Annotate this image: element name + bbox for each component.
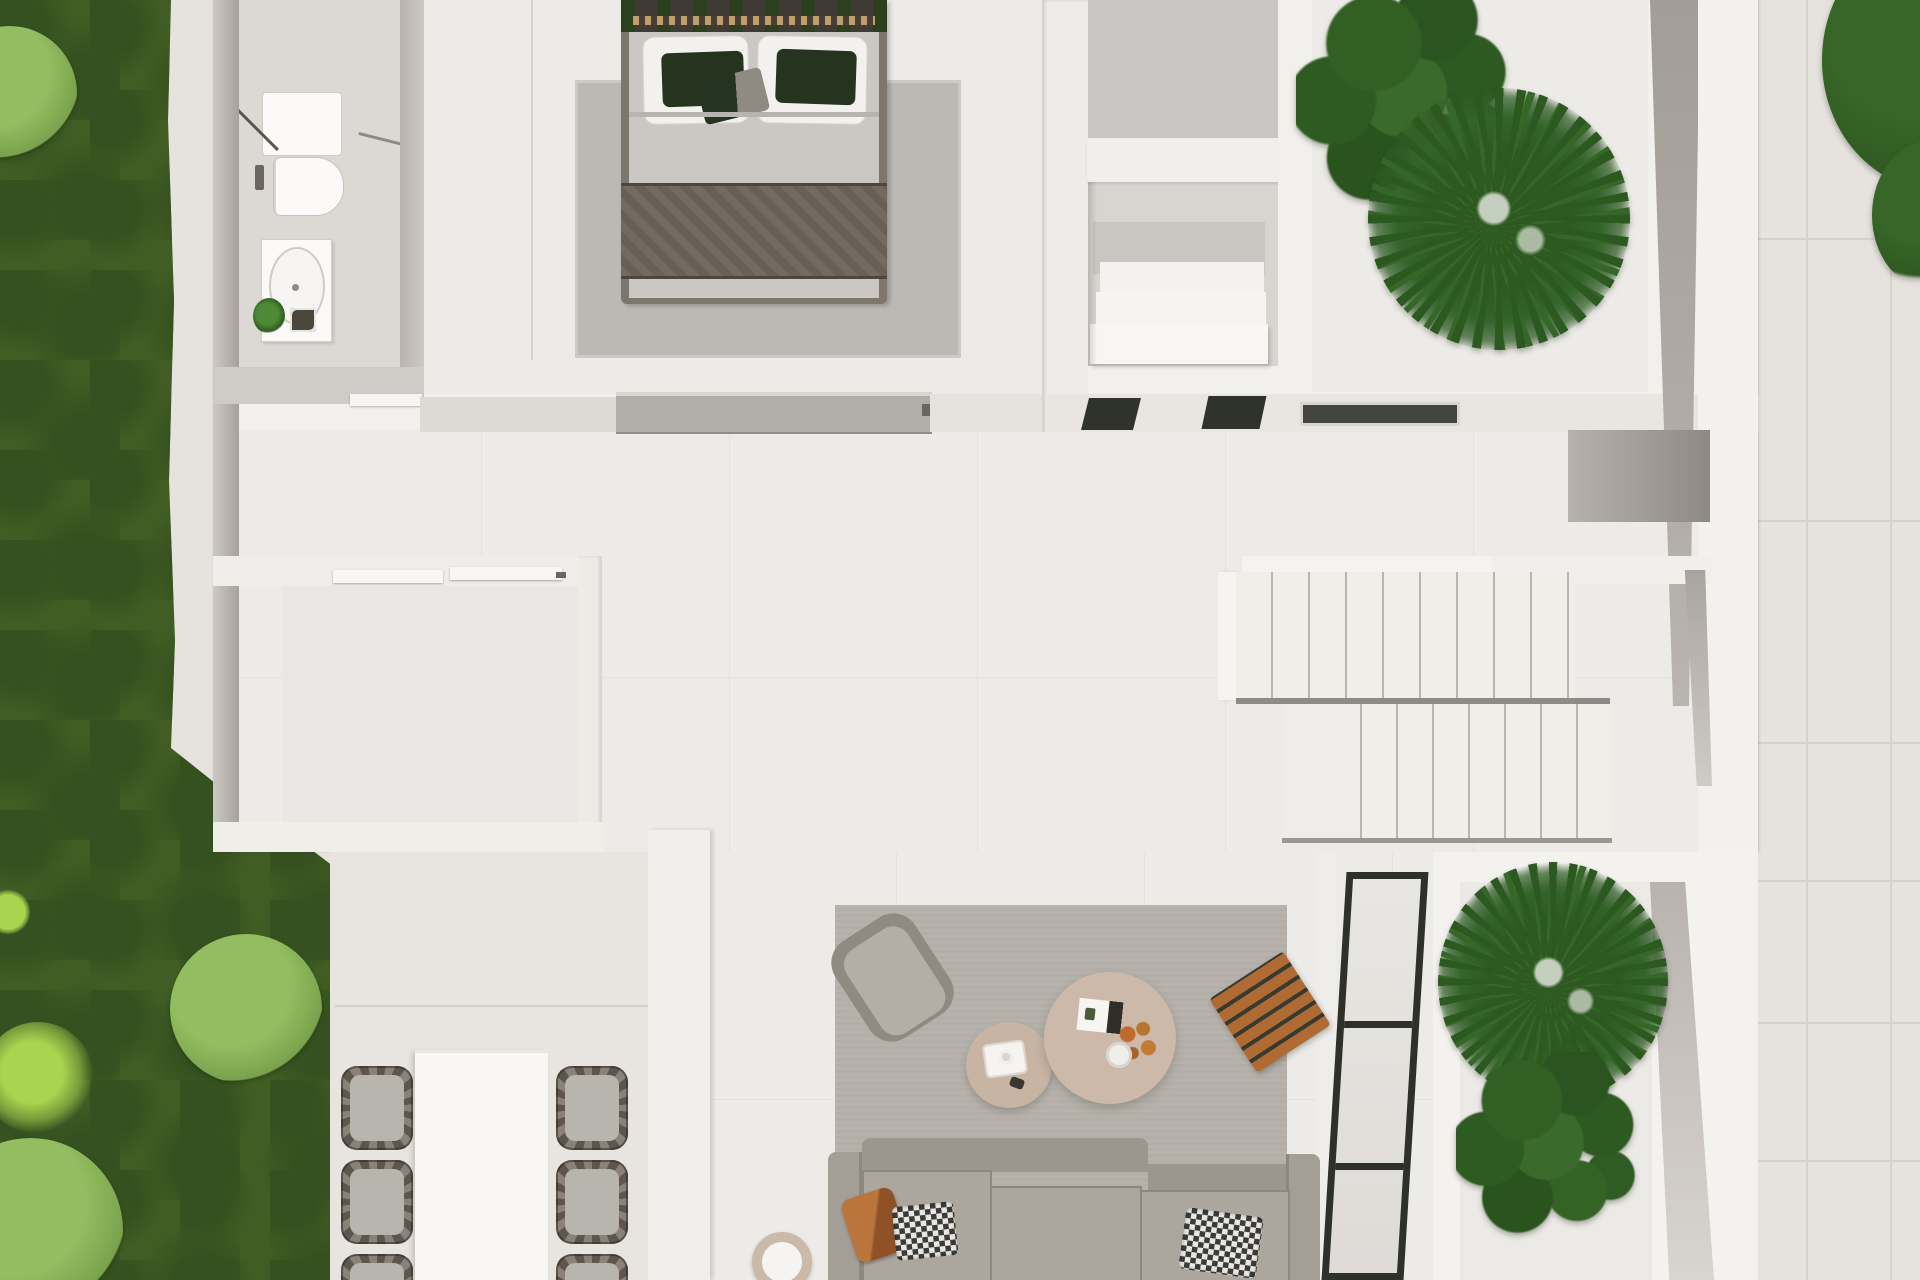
storage-sliding-door <box>450 567 562 580</box>
floor-joint <box>531 0 533 360</box>
sofa-back-right <box>1148 1164 1286 1192</box>
fiddle-leaf-fig <box>1456 1052 1676 1272</box>
vanity-tray <box>290 308 316 332</box>
dining-chair <box>341 1160 413 1244</box>
sofa-back <box>862 1138 1148 1172</box>
stair-lower-flight <box>1362 704 1612 840</box>
paving-grout-line <box>1758 1160 1920 1162</box>
recessed-door-mat <box>1300 402 1460 426</box>
terrace-joint <box>335 1005 650 1007</box>
dining-chair <box>556 1160 628 1244</box>
floor-plan-render <box>0 0 1920 1280</box>
glazing-bar <box>1344 1021 1412 1028</box>
headboard-trim <box>633 16 875 25</box>
stair-upper-flight <box>1236 572 1574 700</box>
vase <box>1106 1042 1132 1068</box>
chair-seat <box>565 1169 619 1235</box>
niche-shadow <box>1087 180 1097 366</box>
toilet <box>273 157 344 216</box>
stair-lower-shadow <box>1282 838 1612 843</box>
bathroom-pocket-door <box>350 394 422 406</box>
chair-seat <box>350 1169 404 1235</box>
cup-on-tray <box>999 1050 1013 1064</box>
chair-seat <box>350 1075 404 1141</box>
dining-chair <box>341 1066 413 1150</box>
wall-storage-south <box>213 822 604 852</box>
storage-room-floor <box>283 586 580 826</box>
paving-grout-line <box>1758 520 1920 522</box>
wall-bath-bedroom <box>400 0 424 370</box>
wall-terrace-living <box>648 830 710 1280</box>
paving-grout-line <box>1806 0 1808 1280</box>
fan-palm <box>1368 88 1630 350</box>
toilet-flush-plate <box>255 165 264 190</box>
wall-closet-niche-north <box>1087 138 1281 182</box>
paving-grout-line <box>1758 742 1920 744</box>
wall-hall-north-a <box>930 394 1047 432</box>
bed-pillow-green <box>775 49 857 106</box>
chair-seat <box>565 1263 619 1280</box>
sofa-pillow-gingham <box>1178 1207 1264 1279</box>
exterior-wall-left <box>213 0 239 848</box>
dining-chair <box>556 1254 628 1280</box>
vanity-faucet <box>292 284 299 291</box>
glass-slider-leaf <box>1081 398 1141 430</box>
sofa-pillow-gingham <box>891 1201 958 1261</box>
storage-sliding-door <box>333 570 443 583</box>
door-handle-notch <box>556 572 566 578</box>
dining-chair <box>556 1066 628 1150</box>
bedroom-pocket-door <box>616 392 932 434</box>
paving-grout-line <box>1758 880 1920 882</box>
bed-sheet-fold <box>629 112 879 117</box>
chair-seat <box>350 1263 404 1280</box>
chair-seat <box>565 1075 619 1141</box>
vanity-plant <box>253 298 285 334</box>
wall-storage-east <box>578 556 602 852</box>
window-niche <box>1568 430 1710 522</box>
stair-landing <box>1282 704 1362 840</box>
sofa-arm-right <box>1286 1154 1320 1280</box>
wall-bedroom-closet <box>1042 0 1088 432</box>
shrub <box>170 934 322 1084</box>
paving-grout-line <box>1758 1022 1920 1024</box>
linen-shelf <box>1090 324 1268 364</box>
glazing-bar <box>1335 1163 1403 1170</box>
bed-runner <box>621 183 887 279</box>
wall-bedroom-south <box>420 397 622 432</box>
glass-slider-leaf <box>1201 396 1266 429</box>
stair-upper-edge <box>1218 572 1236 700</box>
closet-room-floor <box>1087 0 1278 138</box>
dining-chair <box>341 1254 413 1280</box>
magazine-mark <box>1084 1008 1095 1021</box>
sofa-seat <box>990 1186 1142 1280</box>
dining-table <box>415 1050 548 1280</box>
